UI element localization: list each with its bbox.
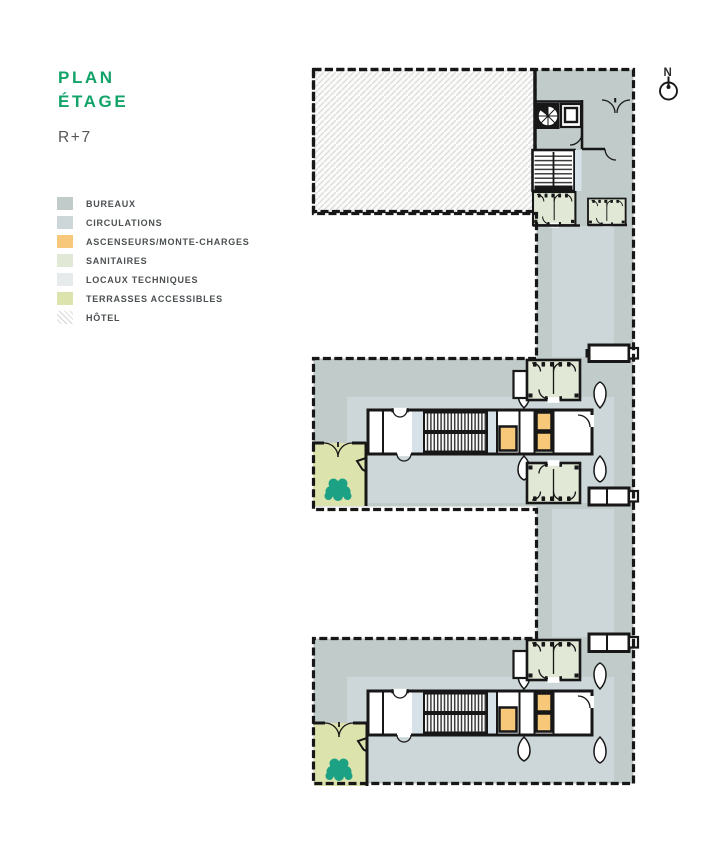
sanitary-room <box>527 360 580 403</box>
hotel-zone <box>314 68 536 226</box>
compass-icon <box>660 77 677 100</box>
sanitary-room <box>527 640 580 683</box>
terrace <box>313 722 367 786</box>
technical-room <box>561 104 581 127</box>
spiral-stair <box>537 103 560 129</box>
page: { "title": { "line1": "PLAN", "line2": "… <box>0 0 722 850</box>
technical-room <box>589 488 638 505</box>
main-stair <box>533 150 575 191</box>
sanitary-room <box>527 460 580 503</box>
sanitary-room <box>533 192 575 228</box>
sanitary-room <box>588 199 626 227</box>
north-arrow: N <box>660 67 677 100</box>
technical-room <box>586 345 639 362</box>
floor-plan: N <box>0 0 722 850</box>
terrace <box>312 442 366 506</box>
